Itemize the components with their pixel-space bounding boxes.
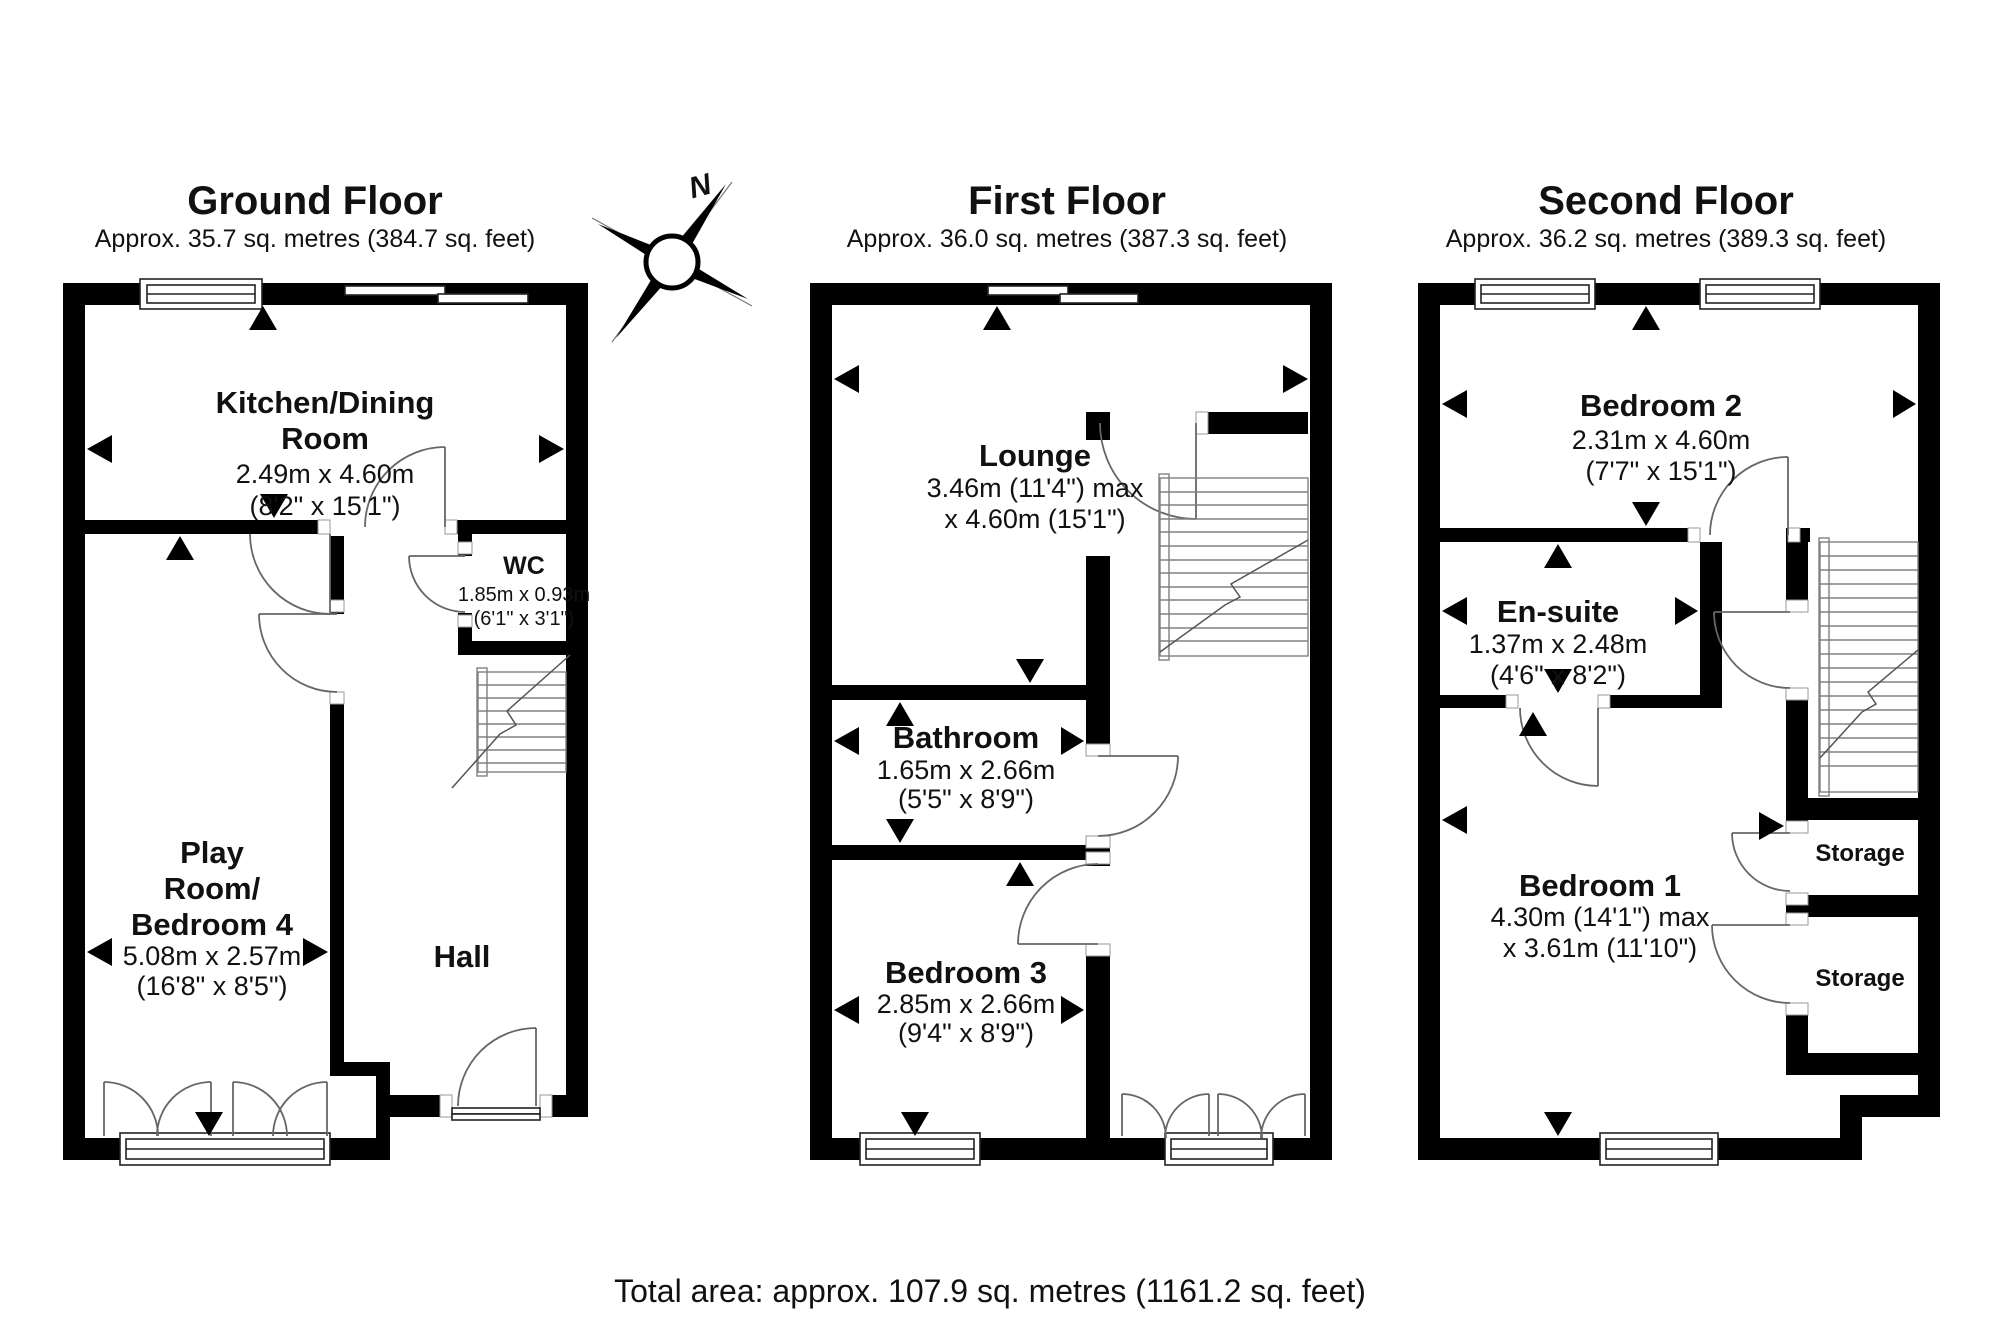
playroom-dims-metric: 5.08m x 2.57m [123, 941, 302, 971]
bedroom3-dims-metric: 2.85m x 2.66m [877, 989, 1056, 1019]
bedroom3-dims-imperial: (9'4" x 8'9") [898, 1018, 1034, 1048]
bedroom2-dims-metric: 2.31m x 4.60m [1572, 425, 1751, 455]
storage-lower-name: Stor​age [1815, 965, 1904, 992]
second-floor-subtitle: Approx. 36.2 sq. metres (389.3 sq. feet) [1446, 225, 1887, 253]
first-floor-plan: First Floor Approx. 36.0 sq. metres (387… [810, 179, 1332, 1165]
first-floor-subtitle: Approx. 36.0 sq. metres (387.3 sq. feet) [847, 225, 1288, 253]
bathroom-dims-imperial: (5'5" x 8'9") [898, 784, 1034, 814]
compass-north-label: N [685, 167, 716, 205]
kitchen-room-name: Kitchen/Dining [216, 385, 435, 420]
kitchen-dims-metric: 2.49m x 4.60m [236, 459, 415, 489]
bedroom2-name: Bedroom 2 [1580, 388, 1742, 423]
second-floor-stairs [1819, 538, 1918, 796]
compass-circle [646, 236, 698, 288]
bathroom-dims-metric: 1.65m x 2.66m [877, 755, 1056, 785]
wc-room-name: WC [503, 552, 545, 580]
wc-dims-metric: 1.85m x 0.93m [458, 584, 590, 606]
bathroom-name: Bathroom [893, 720, 1039, 755]
bedroom1-name: Bedroom 1 [1519, 868, 1681, 903]
playroom-name1: Play [180, 835, 245, 870]
lounge-name: Lounge [979, 438, 1091, 473]
playroom-name3: Bedroom 4 [131, 907, 294, 942]
lounge-dims2: x 4.60m (15'1") [944, 504, 1125, 534]
ensuite-dims-imperial: (4'6" x 8'2") [1490, 660, 1626, 690]
first-floor-walls [810, 283, 1332, 1160]
ground-floor-plan: Ground Floor Approx. 35.7 sq. metres (38… [63, 179, 590, 1165]
ground-floor-stairs [452, 655, 570, 788]
floorplan-page: Ground Floor Approx. 35.7 sq. metres (38… [0, 0, 2000, 1333]
bedroom1-dims1: 4.30m (14'1") max [1491, 902, 1710, 932]
playroom-dims-imperial: (16'8" x 8'5") [136, 971, 287, 1001]
lounge-dims1: 3.46m (11'4") max [927, 473, 1144, 503]
total-area-line: Total area: approx. 107.9 sq. metres (11… [614, 1273, 1366, 1309]
kitchen-room-name2: Room [281, 421, 369, 456]
floorplan-drawing: Ground Floor Approx. 35.7 sq. metres (38… [0, 0, 2000, 1333]
ground-floor-title: Ground Floor [187, 179, 443, 223]
second-floor-title: Second Floor [1538, 179, 1794, 223]
bedroom2-dims-imperial: (7'7" x 15'1") [1585, 456, 1736, 486]
compass-rose: N [592, 167, 752, 342]
playroom-name2: Room/ [164, 871, 261, 906]
first-floor-stairs [1159, 474, 1308, 660]
storage-upper-name: Storage [1815, 840, 1904, 867]
bedroom1-dims2: x 3.61m (11'10") [1503, 933, 1697, 963]
bedroom3-name: Bedroom 3 [885, 955, 1047, 990]
ensuite-name: En-suite [1497, 594, 1619, 629]
first-floor-title: First Floor [968, 179, 1166, 223]
ground-floor-subtitle: Approx. 35.7 sq. metres (384.7 sq. feet) [95, 225, 536, 253]
kitchen-dims-imperial: (8'2" x 15'1") [249, 491, 400, 521]
wc-dims-imperial: (6'1" x 3'1") [474, 608, 575, 630]
hall-name: Hall [434, 939, 491, 974]
second-floor-plan: Second Floor Approx. 36.2 sq. metres (38… [1418, 179, 1940, 1165]
ensuite-dims-metric: 1.37m x 2.48m [1469, 629, 1648, 659]
